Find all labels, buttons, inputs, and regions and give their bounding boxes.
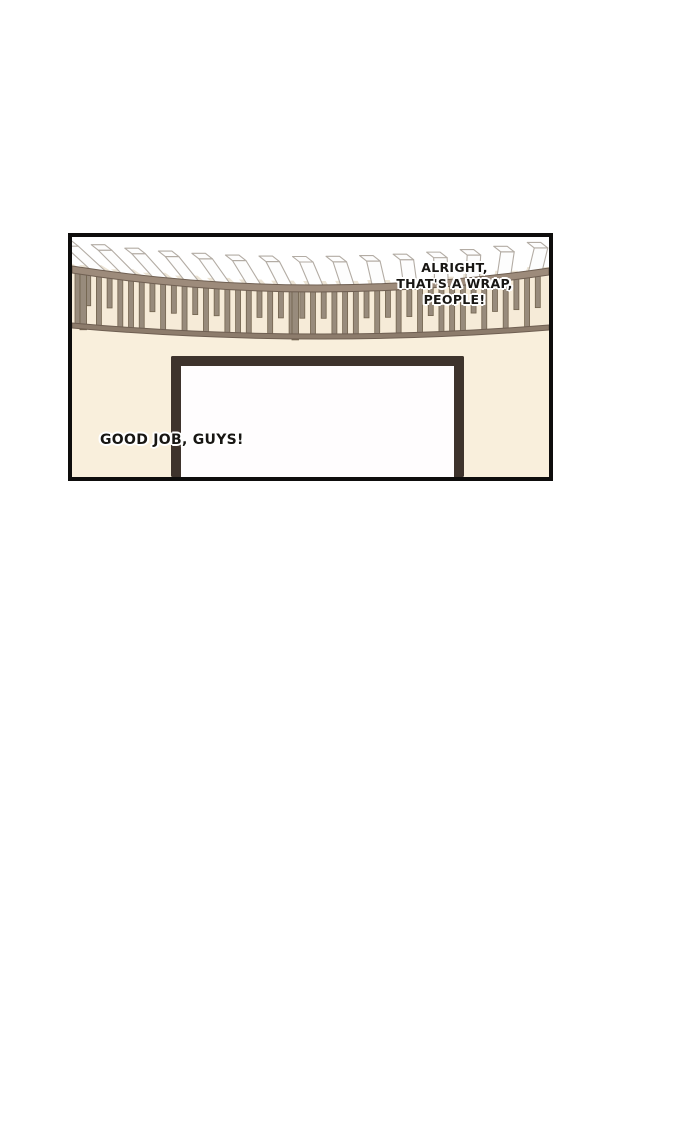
speech-wrap-line-1: ALRIGHT, — [367, 260, 542, 276]
comic-panel: ALRIGHT, THAT'S A WRAP, PEOPLE! GOOD JOB… — [68, 233, 553, 481]
speech-wrap: ALRIGHT, THAT'S A WRAP, PEOPLE! — [367, 260, 542, 308]
speech-wrap-line-2: THAT'S A WRAP, — [367, 276, 542, 292]
comic-page: ALRIGHT, THAT'S A WRAP, PEOPLE! GOOD JOB… — [0, 0, 700, 1130]
speech-goodjob: GOOD JOB, GUYS! — [100, 431, 244, 449]
speech-wrap-line-3: PEOPLE! — [367, 292, 542, 308]
